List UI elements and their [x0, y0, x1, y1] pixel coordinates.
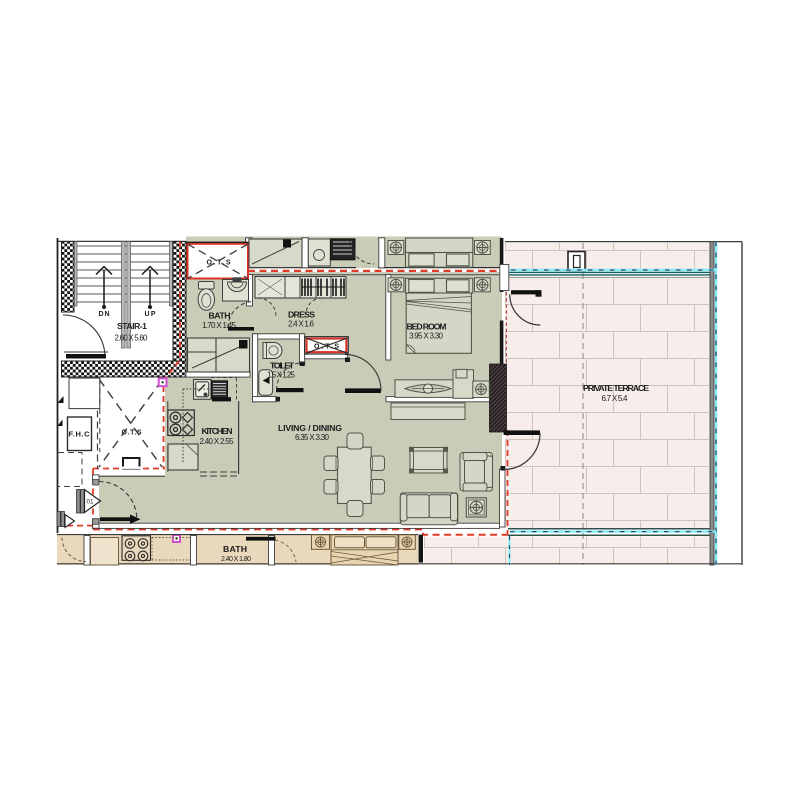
- svg-text:O.T.S: O.T.S: [122, 430, 142, 437]
- svg-text:STAIR-1: STAIR-1: [117, 321, 147, 331]
- svg-text:PRIVATE TERRACE: PRIVATE TERRACE: [583, 383, 649, 393]
- svg-text:1.70 X 1.45: 1.70 X 1.45: [202, 321, 237, 330]
- svg-text:2.60 X 5.60: 2.60 X 5.60: [115, 334, 149, 343]
- svg-text:UP: UP: [145, 311, 156, 318]
- svg-text:O.T.S: O.T.S: [207, 260, 231, 267]
- svg-text:KITCHEN: KITCHEN: [202, 426, 233, 436]
- svg-text:TOILET: TOILET: [270, 361, 295, 371]
- svg-text:2.4 X 1.6: 2.4 X 1.6: [288, 320, 315, 329]
- svg-text:01: 01: [86, 499, 94, 506]
- svg-text:DN: DN: [99, 311, 110, 318]
- svg-text:O.T.S: O.T.S: [314, 343, 339, 350]
- svg-text:1.5 X 1.25: 1.5 X 1.25: [267, 371, 296, 380]
- svg-text:BATH: BATH: [223, 544, 247, 554]
- svg-text:2.40 X 1.80: 2.40 X 1.80: [221, 556, 251, 563]
- svg-text:2.40 X 2.55: 2.40 X 2.55: [200, 437, 235, 446]
- svg-text:3.95 X 3.30: 3.95 X 3.30: [409, 332, 444, 341]
- svg-text:LIVING / DINING: LIVING / DINING: [278, 423, 342, 433]
- svg-text:BATH: BATH: [209, 311, 231, 321]
- svg-text:F.H.C: F.H.C: [69, 430, 91, 439]
- svg-text:BED ROOM: BED ROOM: [407, 322, 447, 332]
- svg-text:DRESS: DRESS: [288, 310, 315, 320]
- svg-text:6.7 X 5.4: 6.7 X 5.4: [602, 394, 629, 403]
- svg-text:6.35 X 3.30: 6.35 X 3.30: [295, 433, 330, 442]
